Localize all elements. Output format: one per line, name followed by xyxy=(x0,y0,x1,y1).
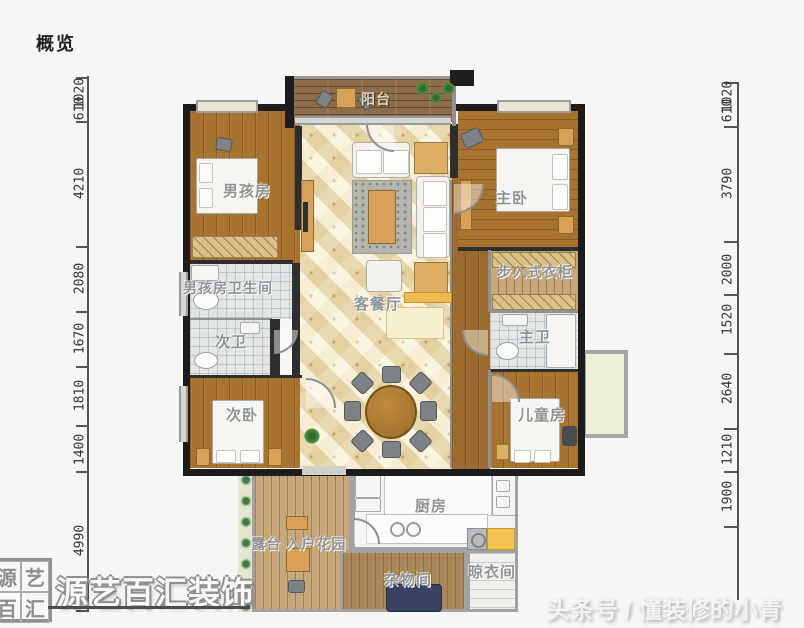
coffee-table xyxy=(368,190,396,244)
wardrobe xyxy=(492,294,576,310)
wall xyxy=(458,247,578,251)
balcony-window xyxy=(295,116,451,125)
sink xyxy=(496,480,510,492)
wall xyxy=(183,260,293,264)
label-boys-room: 男孩房 xyxy=(204,180,290,201)
seal-char: 源 xyxy=(0,561,21,592)
desk-chair xyxy=(215,137,233,153)
ruler-tick xyxy=(724,294,737,296)
wall xyxy=(190,318,272,320)
dim-label-left: 4990 xyxy=(73,519,88,563)
label-master-bedroom: 主卧 xyxy=(482,187,542,208)
wall xyxy=(190,375,302,378)
dim-label-right: 1520 xyxy=(721,298,736,342)
stove-burner xyxy=(406,522,421,537)
label-walk-in-closet: 步入式衣柜 xyxy=(492,262,578,282)
terrace-chair xyxy=(288,580,305,593)
ruler-tick xyxy=(724,241,737,243)
wall xyxy=(292,263,300,377)
laundry-counter xyxy=(487,528,515,550)
armchair-set xyxy=(414,142,448,174)
dim-label-right: 1900 xyxy=(721,475,736,519)
label-terrace-garden: 露台 入户花园 xyxy=(244,534,354,554)
armchair xyxy=(366,260,402,292)
dim-label-left: 1400 xyxy=(73,428,88,472)
desk-chair xyxy=(562,426,577,446)
label-boys-bathroom: 男孩房卫生间 xyxy=(168,278,288,298)
sofa-cushion xyxy=(423,181,447,206)
label-master-bathroom: 主卫 xyxy=(500,326,570,347)
wall xyxy=(490,310,578,313)
sink-counter xyxy=(492,472,516,516)
pillow xyxy=(552,154,568,180)
wardrobe xyxy=(192,236,278,258)
dining-chair xyxy=(382,441,401,458)
ruler-tick xyxy=(724,526,737,528)
plant xyxy=(304,428,320,444)
sink xyxy=(496,496,510,508)
nightstand xyxy=(196,448,210,466)
ruler-tick xyxy=(76,246,89,248)
window xyxy=(179,386,188,442)
dim-label-right: 1210 xyxy=(721,428,736,472)
wall xyxy=(488,370,491,468)
vanity xyxy=(502,314,528,326)
dim-label-left: 4210 xyxy=(73,162,88,206)
dim-label-right: 2640 xyxy=(721,367,736,411)
entry-opening xyxy=(302,466,346,475)
ruler-tick xyxy=(76,311,89,313)
wall xyxy=(490,369,578,372)
label-kids-room: 儿童房 xyxy=(504,404,580,425)
credit-watermark: 头条号 / 懂装修的小青 xyxy=(546,590,782,625)
wall xyxy=(285,76,294,128)
dining-table xyxy=(365,385,417,439)
plant xyxy=(442,82,455,95)
label-second-bedroom: 次卧 xyxy=(206,404,278,425)
dining-chair xyxy=(420,401,437,421)
bench xyxy=(496,444,509,460)
room-side-balcony xyxy=(582,350,628,438)
pillow xyxy=(216,450,236,463)
seal-char: 百 xyxy=(0,592,21,623)
armchair-set xyxy=(414,262,448,294)
right-ruler-line xyxy=(737,82,739,600)
dining-chair xyxy=(382,366,401,383)
label-balcony: 阳台 xyxy=(352,89,400,109)
dim-label-right: 3790 xyxy=(721,162,736,206)
page-title: 概览 xyxy=(36,30,76,56)
label-kitchen: 厨房 xyxy=(398,495,464,516)
dim-label-left: 610 xyxy=(73,87,88,131)
cabinet xyxy=(355,498,381,512)
label-storage: 杂物间 xyxy=(368,569,448,590)
dining-chair xyxy=(344,401,361,421)
wall xyxy=(450,124,458,178)
dim-label-right: 2000 xyxy=(721,248,736,292)
stove-burner xyxy=(390,522,405,537)
ruler-tick xyxy=(76,366,89,368)
tv xyxy=(303,202,308,232)
wall xyxy=(450,180,452,468)
nightstand xyxy=(268,448,282,466)
seal-char: 艺 xyxy=(21,561,49,592)
label-living-dining: 客餐厅 xyxy=(332,293,424,314)
balcony-rail xyxy=(293,76,453,79)
seal-char: 汇 xyxy=(21,592,49,623)
sofa-cushion xyxy=(356,150,382,174)
terrace-cabinet xyxy=(286,516,308,530)
pillow xyxy=(240,450,260,463)
wall xyxy=(488,250,491,312)
brand-underline xyxy=(48,606,250,609)
plant xyxy=(430,92,442,104)
nightstand xyxy=(558,216,574,234)
brand-seal: 源 艺 百 汇 xyxy=(0,558,52,622)
ruler-tick xyxy=(724,353,737,355)
dim-label-left: 2080 xyxy=(73,257,88,301)
pillow xyxy=(534,450,551,463)
fridge xyxy=(355,474,381,498)
label-drying: 晾衣间 xyxy=(452,561,532,582)
plant xyxy=(416,82,429,95)
sofa-cushion xyxy=(423,207,447,232)
dim-label-right: 610 xyxy=(721,89,736,133)
dim-label-left: 1670 xyxy=(73,317,88,361)
sofa-cushion xyxy=(383,150,409,174)
dim-label-left: 1810 xyxy=(73,374,88,418)
washer-door xyxy=(471,533,486,548)
bay-window xyxy=(196,100,258,113)
nightstand xyxy=(558,128,574,146)
bay-window xyxy=(497,100,571,113)
sofa-cushion xyxy=(423,233,447,258)
toilet xyxy=(194,352,218,369)
pillow xyxy=(514,450,531,463)
pillow xyxy=(552,184,568,210)
label-second-bathroom: 次卫 xyxy=(192,331,270,352)
